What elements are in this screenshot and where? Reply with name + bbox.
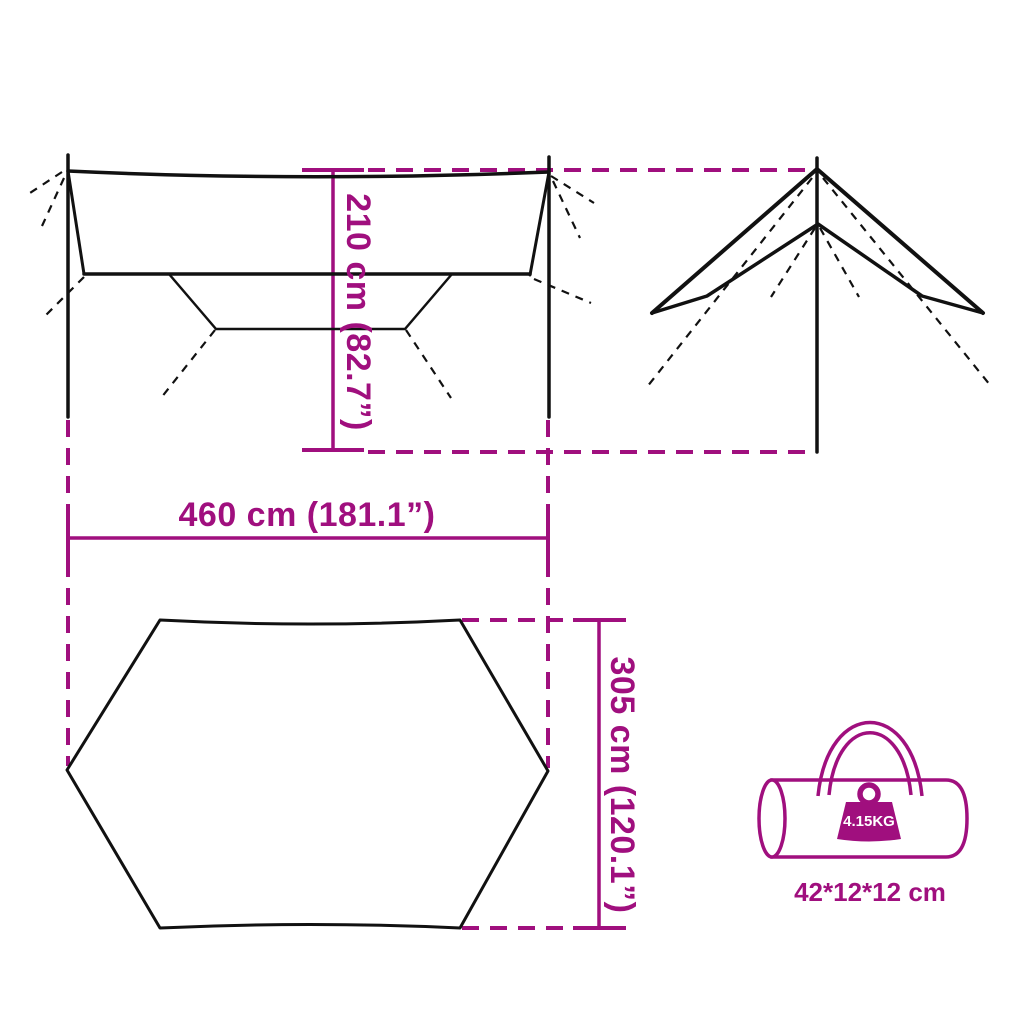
guy-line — [30, 172, 62, 193]
guy-line — [553, 181, 580, 238]
bag-end-cap — [759, 780, 785, 857]
carry-bag-icon — [759, 723, 967, 858]
top-view-drawing — [67, 620, 548, 928]
bag-size-label: 42*12*12 cm — [760, 876, 980, 908]
guy-line — [45, 277, 84, 316]
dimension-height-label: 210 cm (82.7”) — [336, 182, 380, 442]
hexagon-outline — [67, 620, 548, 928]
dimension-lines — [68, 170, 816, 928]
guy-line — [551, 176, 594, 203]
guy-line — [161, 330, 215, 398]
guy-line — [42, 178, 64, 226]
bag-weight-label: 4.15KG — [824, 812, 914, 832]
tarp-right-edge — [530, 172, 549, 275]
product-dimension-diagram: 210 cm (82.7”) 460 cm (181.1”) 305 cm (1… — [0, 0, 1024, 1024]
dimension-depth-label: 305 cm (120.1”) — [600, 640, 644, 930]
guy-line — [534, 279, 591, 303]
dimension-width-label: 460 cm (181.1”) — [147, 494, 467, 536]
tarp-valley-edge — [169, 274, 452, 329]
side-view-drawing — [647, 158, 990, 452]
guy-line — [823, 178, 990, 385]
front-view-drawing — [30, 155, 594, 417]
guy-line — [406, 330, 451, 398]
tarp-left-edge — [68, 171, 84, 274]
